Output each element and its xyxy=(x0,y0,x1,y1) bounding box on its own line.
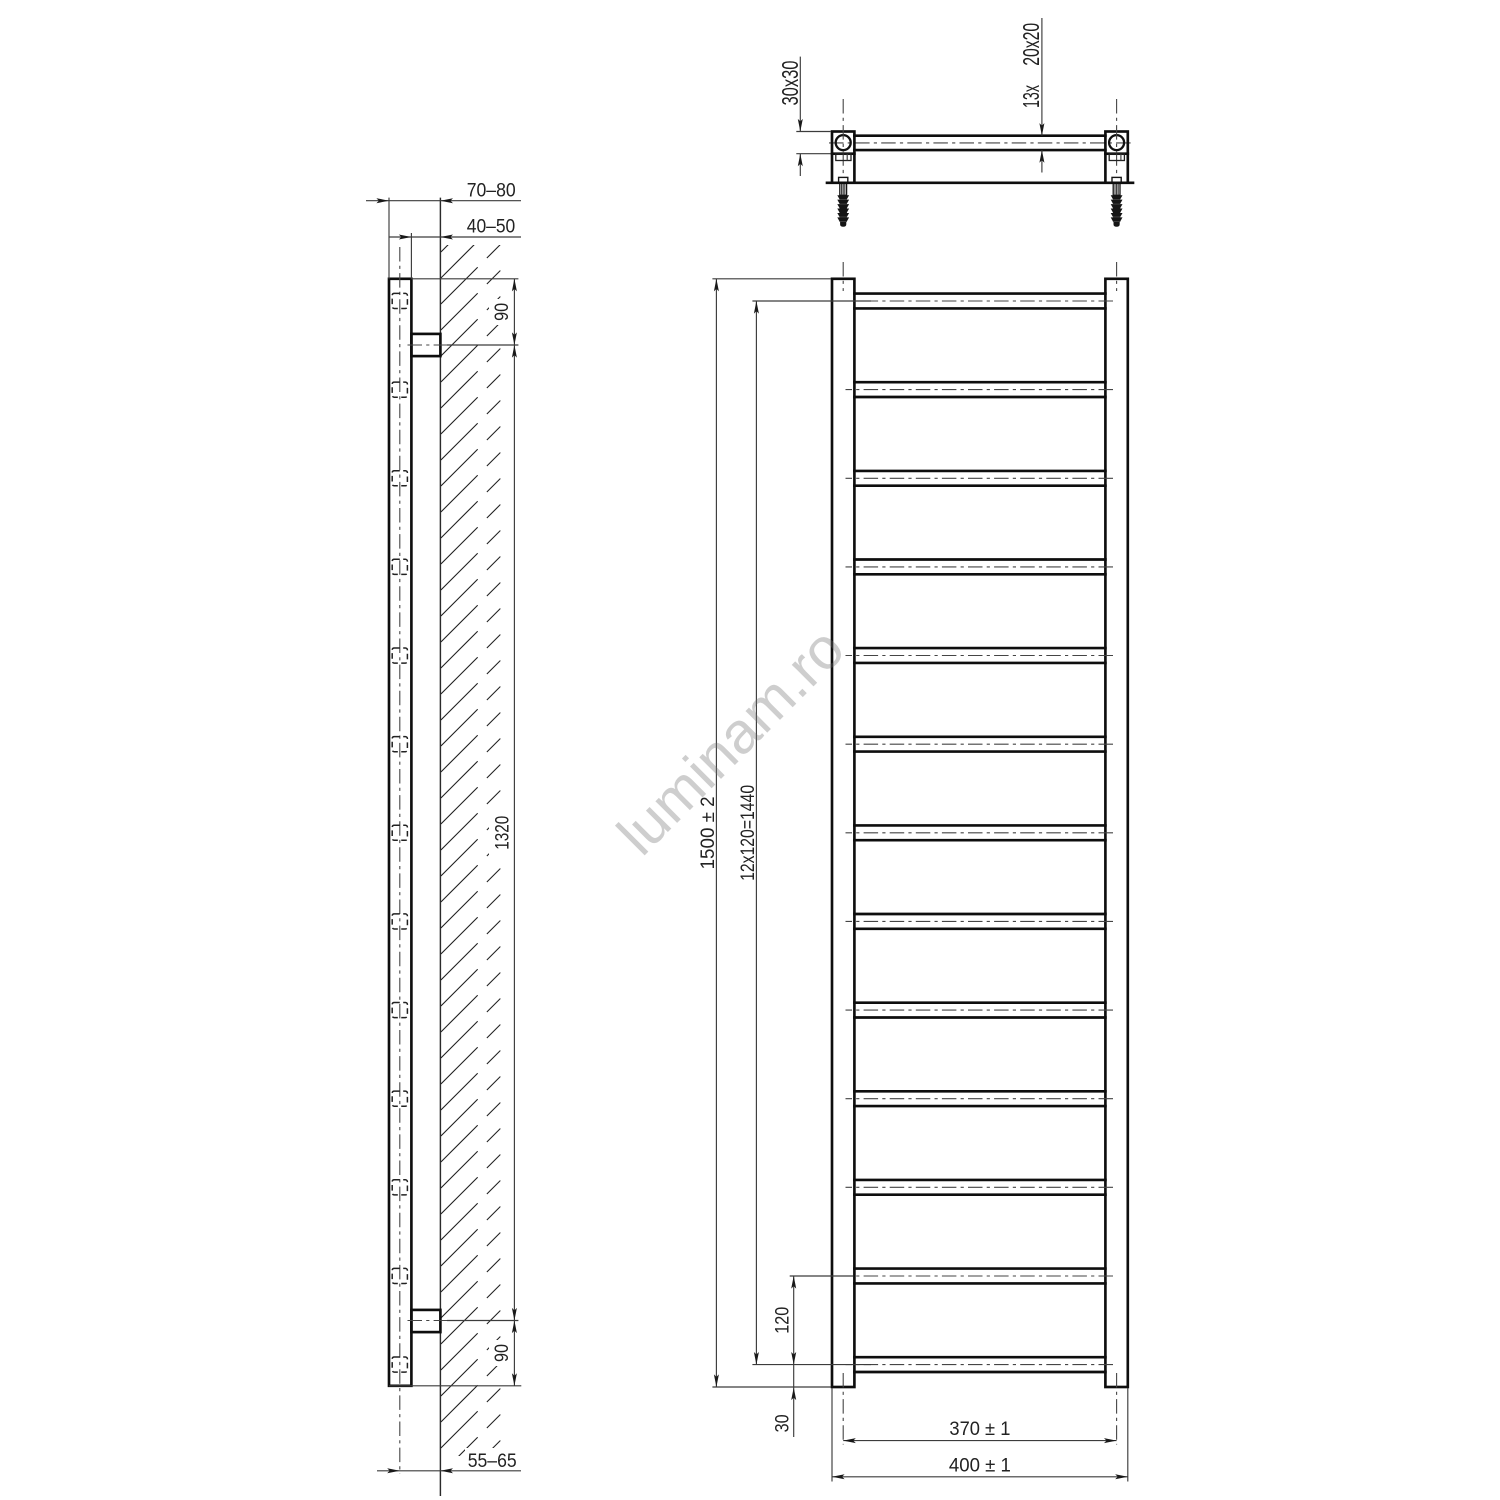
svg-text:120: 120 xyxy=(773,1307,794,1334)
svg-text:40–50: 40–50 xyxy=(467,217,516,238)
svg-text:400 ± 1: 400 ± 1 xyxy=(949,1456,1011,1477)
svg-text:90: 90 xyxy=(492,303,513,321)
svg-text:30: 30 xyxy=(773,1414,794,1432)
svg-text:55–65: 55–65 xyxy=(468,1451,517,1472)
svg-text:30x30: 30x30 xyxy=(777,61,803,106)
svg-text:1320: 1320 xyxy=(493,816,514,850)
svg-text:20x20: 20x20 xyxy=(1018,23,1044,66)
svg-text:13x: 13x xyxy=(1018,85,1044,108)
svg-text:70–80: 70–80 xyxy=(467,181,516,202)
svg-text:12x120=1440: 12x120=1440 xyxy=(738,785,759,881)
svg-text:90: 90 xyxy=(492,1344,513,1362)
svg-text:370 ± 1: 370 ± 1 xyxy=(949,1419,1010,1440)
